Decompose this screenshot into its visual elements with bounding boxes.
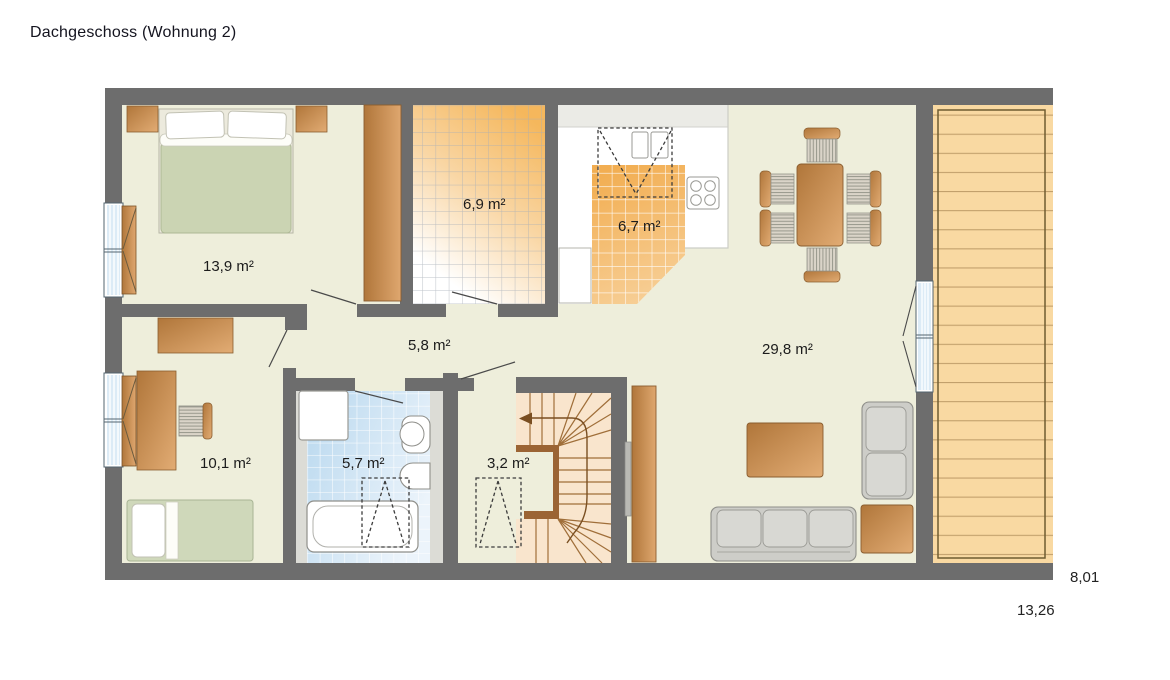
page-title: Dachgeschoss (Wohnung 2) (30, 24, 236, 41)
wall-stairs-right (611, 393, 627, 563)
wall-bathroom-top-right (405, 378, 443, 391)
dining-chair (760, 171, 794, 207)
dining-chair (804, 248, 840, 282)
coffee-table (747, 423, 823, 477)
dimension-bottom: 13,26 (1017, 602, 1055, 619)
balcony-planks (933, 105, 1053, 563)
sofa-three-seat (711, 507, 856, 561)
pillow (166, 111, 225, 139)
kitchen-sink-bowl (651, 132, 668, 158)
bed-duvet (161, 143, 291, 233)
single-bed (127, 500, 253, 561)
sink (400, 463, 430, 489)
kitchen-tall-cabinet (559, 248, 591, 303)
sofa-two-seat (862, 402, 913, 499)
room-label-tiled-room: 6,9 m² (463, 196, 506, 213)
wall-bathroom-right (443, 373, 458, 563)
dining-chair (847, 210, 881, 246)
pillow (132, 504, 165, 557)
room-label-living: 29,8 m² (762, 341, 813, 358)
tv-sideboard (632, 386, 656, 562)
toilet (400, 416, 430, 453)
window-leaf (122, 206, 136, 294)
wall-tiledroom-kitchen (545, 105, 558, 317)
nightstand-left (127, 106, 158, 132)
tv (625, 442, 631, 516)
wall-stub-storage (458, 378, 474, 391)
wall-balcony-upper (916, 88, 933, 281)
wall-office-bathroom (283, 368, 296, 563)
wall-bathroom-top-left (296, 378, 355, 391)
bedroom-window (104, 203, 136, 297)
stove-icon (687, 177, 719, 209)
desk-chair (179, 403, 212, 439)
room-label-bathroom: 5,7 m² (342, 455, 385, 472)
office-window (104, 373, 136, 467)
pillow (228, 111, 287, 139)
dimension-side: 8,01 (1070, 569, 1099, 586)
wall-balcony-lower (916, 392, 933, 580)
wall-stub-office (285, 317, 307, 330)
wall-hall-top-left (122, 304, 307, 317)
balcony (933, 105, 1053, 563)
desk (137, 371, 176, 470)
floor-plan-svg: Dachgeschoss (Wohnung 2) 13,9 m² 6,9 m² … (0, 0, 1170, 680)
wall-hall-top-right (498, 304, 558, 317)
room-label-kitchen: 6,7 m² (618, 218, 661, 235)
wall-hall-top-mid (357, 304, 446, 317)
window-leaf (122, 376, 136, 466)
wall-exterior-bottom (105, 563, 1053, 580)
wall-exterior-left (105, 88, 122, 580)
shower (299, 391, 348, 440)
kitchen-sink-bowl (632, 132, 648, 158)
wall-exterior-top (105, 88, 1053, 105)
room-label-office: 10,1 m² (200, 455, 251, 472)
floor-plan-page: Dachgeschoss (Wohnung 2) 13,9 m² 6,9 m² … (0, 0, 1170, 680)
wardrobe (364, 105, 401, 301)
wall-bedroom-tiledroom (400, 105, 413, 317)
room-label-hallway: 5,8 m² (408, 337, 451, 354)
dining-chair (847, 171, 881, 207)
dining-chair (760, 210, 794, 246)
double-bed (159, 109, 293, 233)
room-label-storage: 3,2 m² (487, 455, 530, 472)
dresser (158, 318, 233, 353)
wall-stairs-top (516, 377, 627, 393)
nightstand-right (296, 106, 327, 132)
dining-table (797, 164, 843, 246)
side-table (861, 505, 913, 553)
kitchen-counter-top (558, 105, 728, 127)
dining-chair (804, 128, 840, 162)
room-label-bedroom: 13,9 m² (203, 258, 254, 275)
